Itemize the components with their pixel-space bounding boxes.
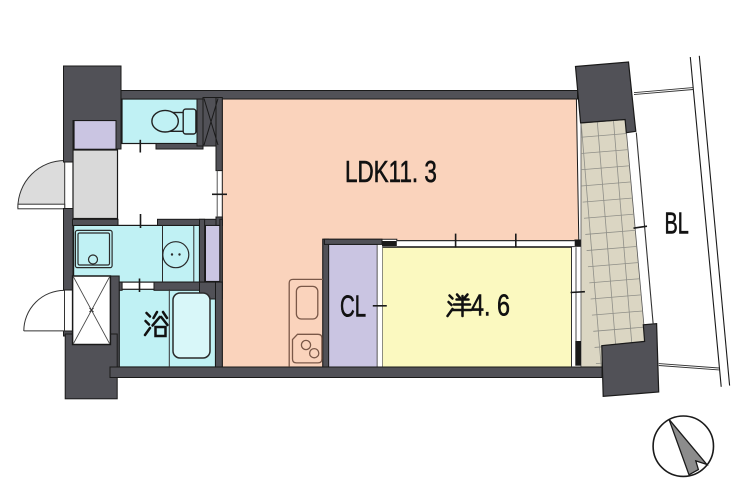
svg-text:BL: BL — [665, 205, 689, 241]
svg-text:4. 6: 4. 6 — [471, 287, 510, 322]
svg-text:CL: CL — [340, 288, 366, 323]
svg-text:LDK11. 3: LDK11. 3 — [345, 155, 437, 189]
